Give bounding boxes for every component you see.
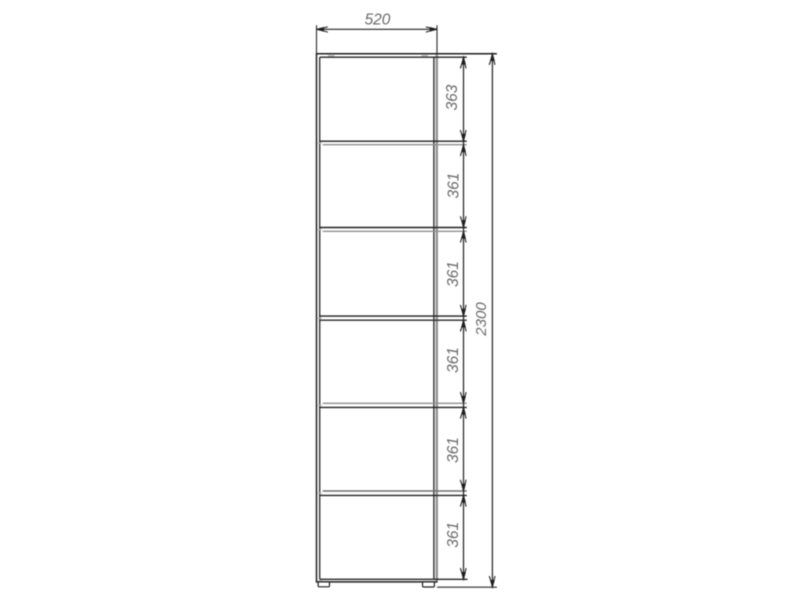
svg-text:2300: 2300 bbox=[473, 302, 490, 337]
svg-text:361: 361 bbox=[445, 261, 462, 287]
svg-text:520: 520 bbox=[365, 12, 391, 29]
svg-text:361: 361 bbox=[446, 173, 463, 199]
svg-text:361: 361 bbox=[445, 437, 462, 463]
svg-text:361: 361 bbox=[445, 347, 462, 373]
svg-text:361: 361 bbox=[445, 522, 462, 548]
svg-text:363: 363 bbox=[444, 84, 461, 110]
